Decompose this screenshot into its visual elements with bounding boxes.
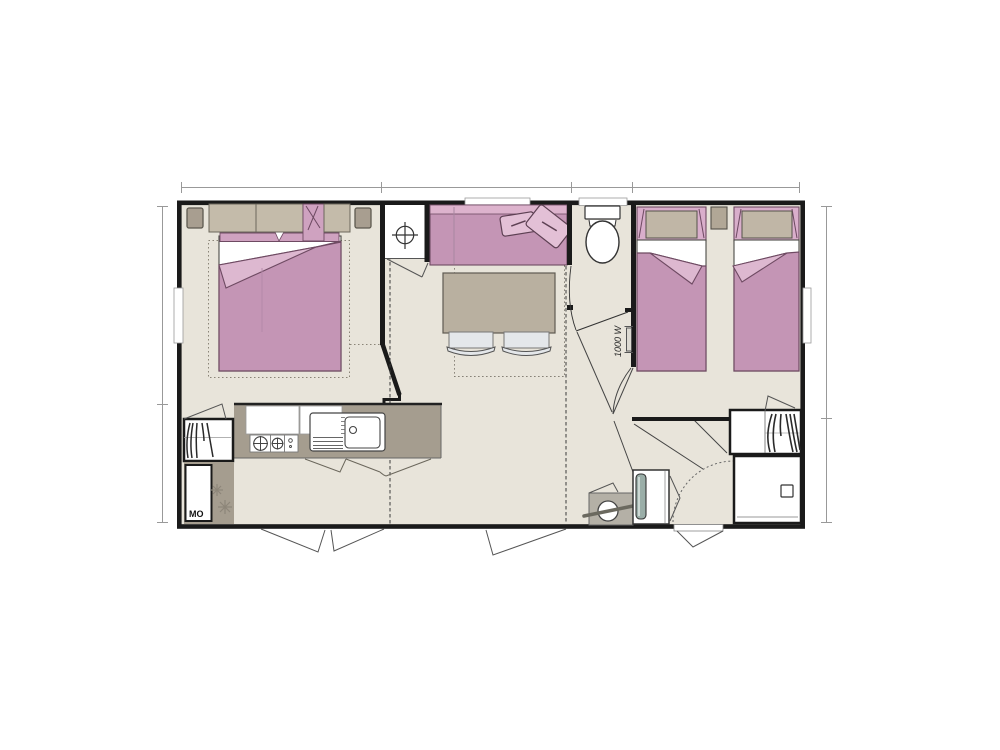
svg-text:1000 W: 1000 W	[613, 324, 623, 357]
svg-text:MO: MO	[189, 509, 204, 519]
